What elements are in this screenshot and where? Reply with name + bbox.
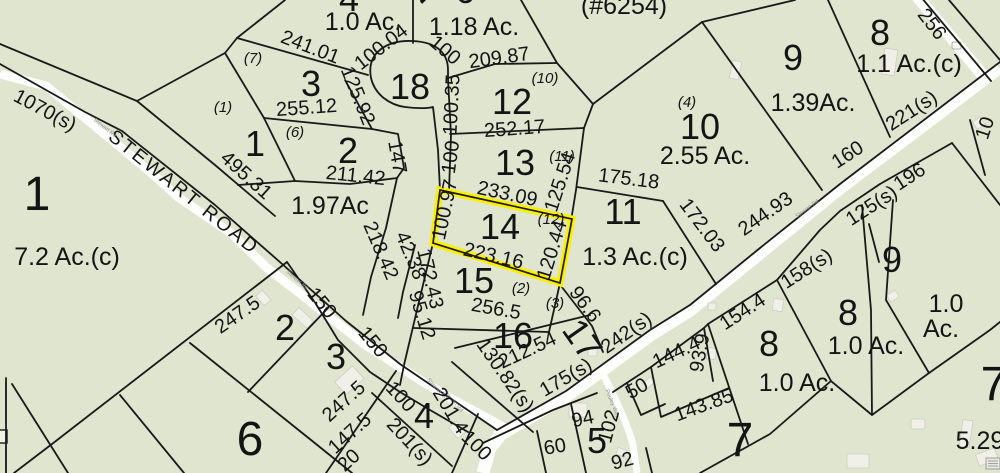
- svg-text:6: 6: [455, 0, 475, 11]
- svg-text:(#6254): (#6254): [581, 0, 667, 20]
- svg-text:12: 12: [492, 81, 532, 122]
- svg-text:1: 1: [245, 123, 265, 164]
- svg-text:(1): (1): [214, 99, 232, 116]
- svg-text:1.3 Ac.(c): 1.3 Ac.(c): [582, 243, 688, 271]
- svg-text:(3): (3): [546, 295, 564, 312]
- svg-text:1.1 Ac.(c): 1.1 Ac.(c): [856, 50, 962, 78]
- svg-text:Ac.: Ac.: [923, 315, 959, 343]
- svg-text:100: 100: [438, 139, 464, 175]
- svg-text:(2): (2): [512, 280, 530, 297]
- svg-text:60: 60: [542, 434, 568, 460]
- svg-text:1.18 Ac.: 1.18 Ac.: [429, 13, 519, 41]
- svg-text:18: 18: [390, 66, 430, 107]
- svg-text:1.0 Ac.: 1.0 Ac.: [759, 369, 835, 397]
- svg-text:8: 8: [870, 12, 890, 53]
- svg-text:5.29: 5.29: [956, 427, 1000, 455]
- svg-text:1.39Ac.: 1.39Ac.: [771, 89, 856, 117]
- svg-text:10: 10: [680, 106, 720, 147]
- svg-text:252.17: 252.17: [483, 116, 546, 142]
- svg-text:8: 8: [759, 323, 779, 364]
- svg-text:(6): (6): [286, 124, 304, 141]
- svg-text:100.35: 100.35: [439, 74, 464, 136]
- svg-text:1.97Ac: 1.97Ac: [291, 192, 369, 220]
- svg-text:13: 13: [495, 142, 535, 183]
- svg-text:2.55 Ac.: 2.55 Ac.: [660, 142, 750, 170]
- svg-text:2: 2: [275, 307, 295, 348]
- svg-text:1: 1: [24, 168, 51, 221]
- svg-text:5: 5: [587, 420, 607, 461]
- svg-text:7: 7: [727, 414, 754, 467]
- svg-text:(10): (10): [532, 70, 559, 87]
- svg-text:(7): (7): [244, 50, 262, 67]
- svg-text:9: 9: [783, 37, 803, 78]
- svg-text:7: 7: [981, 358, 1000, 411]
- svg-text:7.2 Ac.(c): 7.2 Ac.(c): [14, 243, 120, 271]
- svg-text:8: 8: [838, 292, 858, 333]
- svg-text:9: 9: [882, 239, 902, 280]
- svg-text:1.0 Ac.: 1.0 Ac.: [828, 332, 904, 360]
- svg-text:255.12: 255.12: [275, 95, 338, 121]
- svg-text:14: 14: [480, 206, 520, 247]
- svg-text:6: 6: [237, 413, 264, 466]
- svg-text:4: 4: [414, 395, 434, 436]
- svg-text:3: 3: [326, 336, 346, 377]
- svg-text:11: 11: [604, 191, 641, 232]
- svg-text:1.0: 1.0: [929, 290, 964, 318]
